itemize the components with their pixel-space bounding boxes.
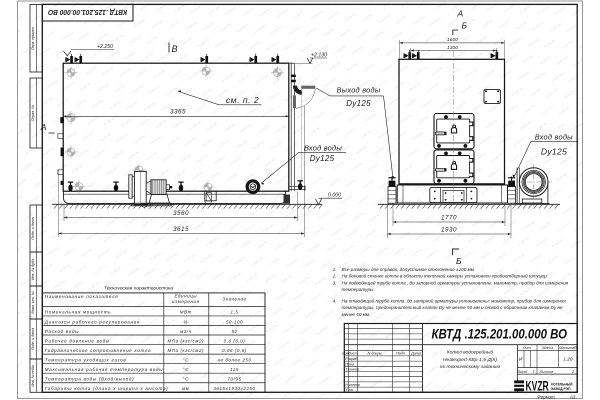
svg-text:1:20: 1:20 (563, 357, 573, 363)
svg-text:Справ. №: Справ. № (31, 105, 35, 121)
svg-text:Рабочее давление воды: Рабочее давление воды (45, 338, 110, 343)
svg-text:KVZR: KVZR (526, 378, 549, 393)
svg-text:КВТД .125.201.00.000 ВО: КВТД .125.201.00.000 ВО (432, 326, 568, 341)
svg-text:ЗАВОД РЭП: ЗАВОД РЭП (551, 387, 571, 391)
svg-text:Подп.: Подп. (396, 351, 406, 355)
svg-text:А: А (40, 122, 47, 132)
svg-text:см. п. 2: см. п. 2 (226, 95, 259, 105)
svg-text:Взам. инв. №: Взам. инв. № (31, 291, 35, 313)
svg-text:Техническая характеристика: Техническая характеристика (104, 285, 174, 291)
svg-text:Габариты котла (длина х ширина: Габариты котла (длина х ширина х высота) (45, 386, 169, 391)
svg-text:А3: А3 (569, 395, 576, 400)
svg-text:+2.130: +2.130 (311, 53, 327, 59)
svg-text:1300: 1300 (447, 45, 458, 51)
svg-text:На отводящей трубе котла ,до з: На отводящей трубе котла ,до запорной ар… (342, 298, 567, 304)
svg-text:70/95: 70/95 (227, 377, 241, 382)
svg-text:3615х1930х2250: 3615х1930х2250 (213, 386, 255, 391)
svg-text:Листов: Листов (539, 370, 554, 374)
svg-text:N докум.: N докум. (368, 351, 383, 355)
svg-text:°С: °С (183, 367, 189, 372)
svg-text:На подводящей трубе котла ,: На подводящей трубе котла , до запорной … (342, 280, 569, 286)
svg-text:0,06 (0,6): 0,06 (0,6) (222, 348, 247, 353)
svg-text:температуры, предохранительный: температуры, предохранительный клапан Dy… (342, 304, 564, 310)
svg-text:°С: °С (183, 377, 189, 382)
svg-text:1,5: 1,5 (231, 310, 239, 315)
svg-text:1770: 1770 (441, 214, 457, 221)
svg-text:А: А (457, 9, 464, 19)
svg-text:Инв. № дубл.: Инв. № дубл. (31, 258, 35, 280)
svg-text:Утв.: Утв. (345, 388, 353, 392)
svg-text:Лит.: Лит. (522, 346, 532, 350)
svg-text:Heatexpert-КВр-1,5-Д(К): Heatexpert-КВр-1,5-Д(К) (443, 357, 497, 363)
svg-text:Dy125: Dy125 (541, 146, 567, 156)
svg-text:Подп. и дата: Подп. и дата (31, 328, 35, 351)
svg-text:1600: 1600 (447, 37, 458, 43)
svg-text:1930: 1930 (441, 226, 457, 233)
svg-text:Наименование показателя: Наименование показателя (45, 294, 119, 299)
svg-text:3.: 3. (333, 281, 337, 286)
svg-text:Выход воды: Выход воды (336, 85, 380, 94)
svg-text:Температура воды (Вход/выход): Температура воды (Вход/выход) (45, 377, 135, 382)
svg-text:Инв. № подл.: Инв. № подл. (31, 364, 35, 386)
svg-text:2.: 2. (332, 274, 337, 279)
svg-text:Диапазон рабочего регулировани: Диапазон рабочего регулирования (44, 319, 140, 324)
svg-text:115: 115 (230, 367, 239, 372)
svg-text:Н.контр: Н.контр (345, 383, 360, 387)
svg-text:Номинальная мощность: Номинальная мощность (45, 310, 112, 315)
svg-text:Максимальная рабочая температу: Максимальная рабочая температура воды (45, 367, 163, 372)
svg-text:%: % (184, 319, 189, 324)
svg-text:Расход воды: Расход воды (45, 329, 79, 334)
svg-text:менее 50 мм.: менее 50 мм. (342, 312, 371, 317)
svg-text:м3/ч: м3/ч (180, 329, 191, 334)
svg-text:Подп. и дата: Подп. и дата (31, 217, 35, 240)
svg-text:Формат: Формат (537, 395, 555, 400)
svg-text:температуры.: температуры. (342, 287, 375, 292)
svg-text:1: 1 (533, 370, 535, 374)
svg-text:Масштаб: Масштаб (559, 346, 577, 350)
svg-text:измерения: измерения (172, 299, 200, 304)
svg-text:Вход воды: Вход воды (535, 132, 573, 141)
svg-text:Все размеры для справок, допус: Все размеры для справок, допустимое откл… (342, 267, 476, 272)
svg-text:КОТЕЛЬНЫЙ: КОТЕЛЬНЫЙ (551, 382, 573, 386)
svg-text:Dy125: Dy125 (346, 99, 371, 108)
svg-text:Лист: Лист (347, 351, 358, 355)
svg-text:МПа (кгс/см2): МПа (кгс/см2) (168, 338, 205, 343)
svg-text:0,6 (6,0): 0,6 (6,0) (224, 338, 246, 343)
svg-text:52: 52 (231, 329, 237, 334)
svg-text:4.: 4. (333, 299, 337, 304)
svg-text:В: В (172, 44, 178, 54)
svg-text:Б: Б (462, 21, 468, 31)
svg-text:Dy125: Dy125 (310, 154, 335, 163)
svg-text:Единицы: Единицы (174, 293, 197, 298)
svg-text:Разраб.: Разраб. (345, 357, 358, 361)
svg-text:3560: 3560 (173, 210, 189, 217)
svg-text:мм: мм (182, 386, 189, 391)
svg-text:Гидравлическое сопротивление к: Гидравлическое сопротивление котла (45, 348, 151, 353)
svg-text:по техническому заданию: по техническому заданию (440, 364, 501, 370)
svg-text:Дата: Дата (410, 351, 421, 355)
svg-text:3365: 3365 (170, 109, 186, 116)
svg-text:КВТД .125.201.00.000 ВО: КВТД .125.201.00.000 ВО (48, 8, 127, 17)
svg-text:На боковой стенке котла в обла: На боковой стенке котла в области топочн… (342, 273, 548, 279)
svg-text:Т.контр: Т.контр (345, 368, 359, 372)
svg-text:+2.250: +2.250 (97, 44, 113, 50)
svg-text:Б: Б (456, 256, 462, 266)
svg-text:Лист: Лист (517, 370, 528, 374)
svg-text:1.: 1. (333, 267, 337, 272)
svg-text:Пров.: Пров. (345, 362, 355, 366)
svg-text:Температура уходящих газов: Температура уходящих газов (45, 357, 127, 362)
svg-text:0.000: 0.000 (328, 193, 341, 199)
svg-text:2: 2 (571, 370, 574, 374)
svg-text:3615: 3615 (173, 226, 189, 233)
svg-text:Масса: Масса (542, 346, 553, 350)
svg-text:не более 250: не более 250 (217, 357, 251, 362)
svg-text:МВт: МВт (180, 310, 192, 315)
svg-text:°С: °С (183, 357, 189, 362)
svg-text:Значение: Значение (222, 297, 246, 302)
svg-text:Вход воды: Вход воды (304, 143, 342, 152)
svg-text:50-100: 50-100 (226, 319, 243, 324)
svg-text:Котел водогрейный: Котел водогрейный (447, 349, 494, 356)
svg-text:Перв. примен.: Перв. примен. (31, 26, 35, 50)
svg-text:МПа (кгс/см2): МПа (кгс/см2) (168, 348, 205, 353)
